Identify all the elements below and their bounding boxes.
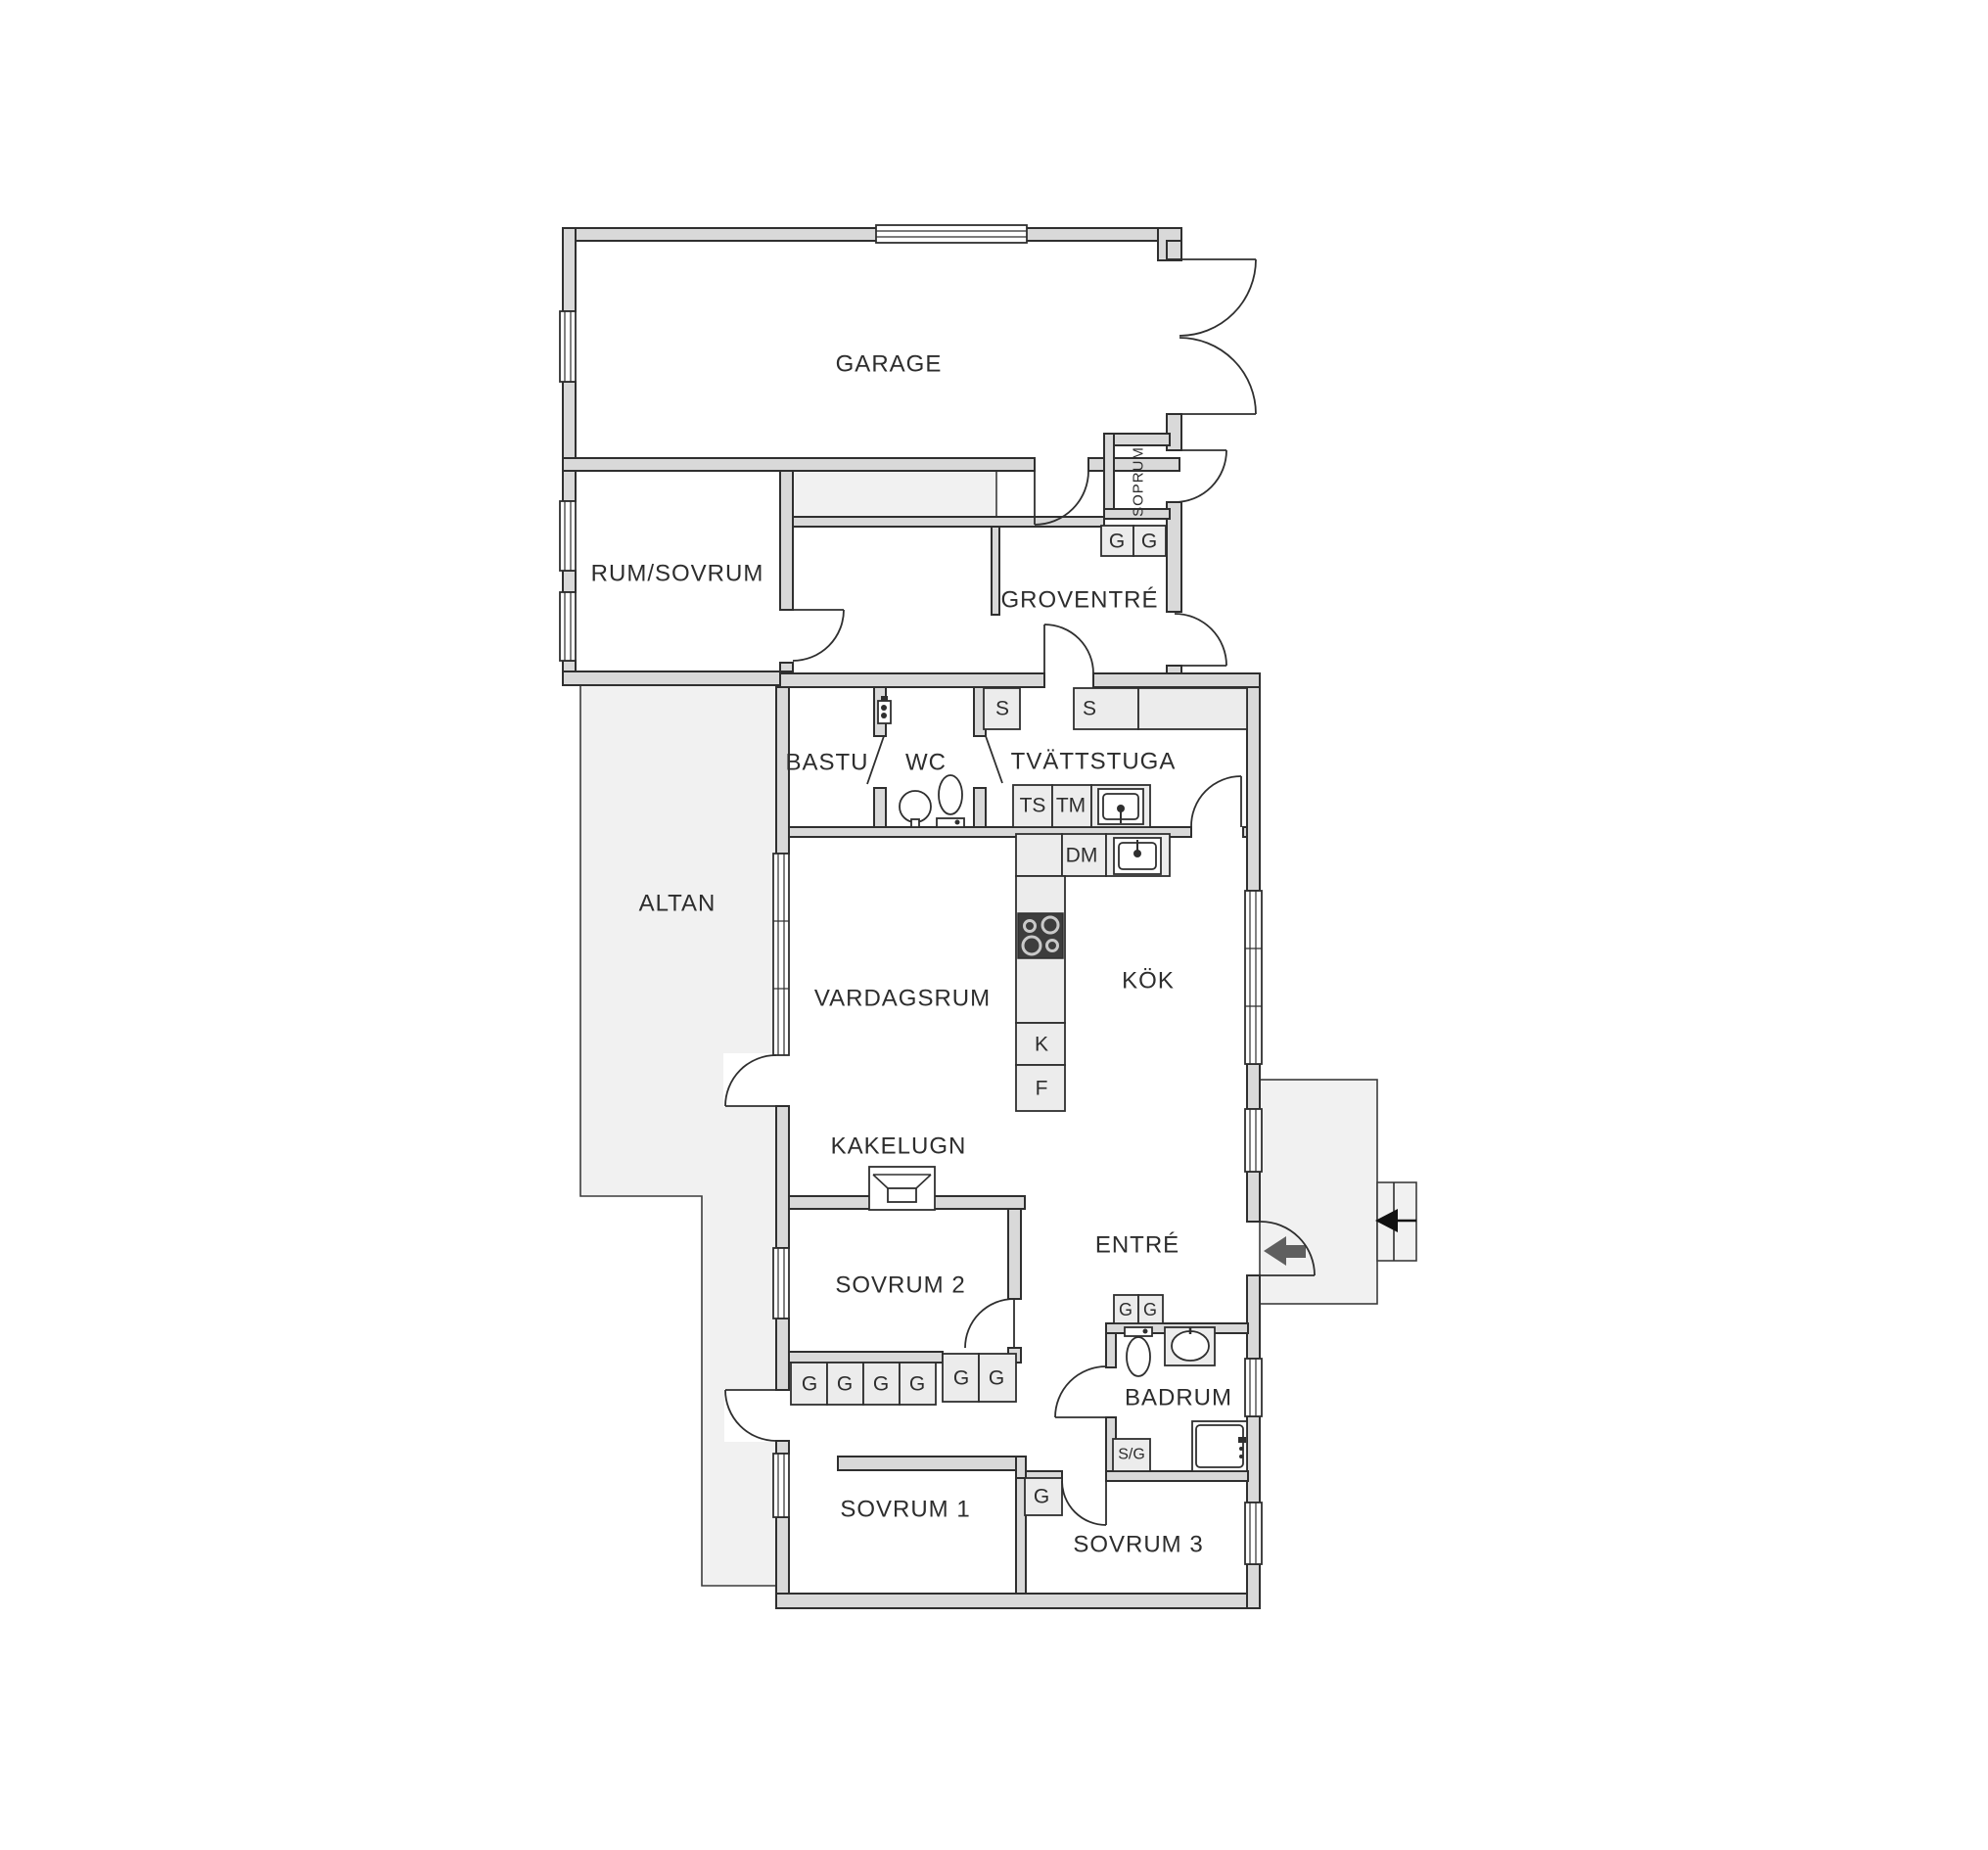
entry-porch — [1260, 1080, 1377, 1304]
bastu-door-leaf — [867, 736, 884, 784]
entre-wardrobe-1: G — [1114, 1295, 1138, 1323]
garage-left-window — [560, 311, 576, 382]
kitchen-counter-left — [1016, 834, 1062, 876]
rum-sovrum-window-2 — [560, 592, 576, 661]
hall-wardrobe-4: G — [900, 1363, 936, 1405]
room-label-sovrum1: SOVRUM 1 — [840, 1497, 970, 1523]
soprum-door — [1175, 450, 1226, 502]
room-label-sovrum3: SOVRUM 3 — [1073, 1532, 1203, 1558]
hall-wardrobe-5: G — [943, 1354, 979, 1402]
wardrobe-label: G — [1119, 1300, 1133, 1319]
kitchen-fridge-k: K — [1016, 1023, 1065, 1065]
hall-wardrobe-2: G — [827, 1363, 863, 1405]
deck-areas — [580, 468, 1416, 1586]
washer-label: TM — [1056, 795, 1086, 817]
hall-wardrobe-3: G — [863, 1363, 900, 1405]
kitchen-freezer-f: F — [1016, 1065, 1065, 1111]
floorplan-canvas: G G S S TS TM DM — [0, 0, 1988, 1850]
laundry-cabinet-s2: S — [1074, 688, 1138, 729]
rum-sovrum-door — [793, 610, 844, 661]
badrum-toilet-icon — [1125, 1327, 1152, 1376]
laundry-tm-unit: TM — [1052, 785, 1091, 827]
room-label-altan: ALTAN — [639, 891, 717, 917]
room-label-rum-sovrum: RUM/SOVRUM — [591, 561, 764, 587]
groventre-exterior-door — [1175, 614, 1226, 666]
room-label-kok: KÖK — [1122, 968, 1175, 994]
kok-window — [1245, 891, 1262, 1064]
room-label-wc: WC — [905, 750, 947, 776]
sauna-heater-icon — [878, 696, 891, 723]
wc-toilet-icon — [937, 775, 964, 827]
wardrobe-label: G — [1109, 531, 1125, 553]
sovrum2-door — [965, 1299, 1014, 1348]
room-label-sovrum2: SOVRUM 2 — [835, 1272, 965, 1299]
wc-door-leaf — [986, 736, 1002, 783]
laundry-sink-icon — [1098, 789, 1143, 824]
soprum-wardrobe-1: G — [1101, 526, 1133, 556]
dishwasher-label: DM — [1066, 845, 1098, 867]
altan-deck — [580, 685, 776, 1586]
cabinet-label: S/G — [1118, 1447, 1145, 1463]
wc-sink-icon — [900, 791, 931, 827]
entre-window — [1245, 1109, 1262, 1172]
sovrum1-window — [773, 1454, 789, 1517]
floorplan-svg: G G S S TS TM DM — [0, 0, 1988, 1850]
wardrobe-label: G — [802, 1373, 817, 1396]
fridge-label: K — [1035, 1034, 1048, 1056]
wardrobe-label: G — [909, 1373, 925, 1396]
wardrobe-label: G — [1034, 1486, 1049, 1508]
entre-wardrobe-2: G — [1138, 1295, 1163, 1323]
room-label-garage: GARAGE — [836, 351, 943, 378]
garage-double-door — [1179, 259, 1256, 414]
wardrobe-label: G — [873, 1373, 889, 1396]
garage-storage-strip — [793, 468, 996, 517]
laundry-ts-unit: TS — [1013, 785, 1052, 827]
room-label-entre: ENTRÉ — [1095, 1232, 1179, 1259]
room-label-vardagsrum: VARDAGSRUM — [814, 986, 991, 1012]
shower-icon — [1192, 1421, 1247, 1471]
badrum-sg-cabinet: S/G — [1113, 1439, 1150, 1471]
sovrum3-wardrobe: G — [1025, 1478, 1062, 1515]
groventre-tvattstuga-door — [1044, 624, 1093, 673]
wardrobe-label: G — [953, 1367, 969, 1390]
laundry-cabinet-plain — [1138, 688, 1247, 729]
wardrobe-label: G — [1143, 1300, 1157, 1319]
wardrobe-label: G — [989, 1367, 1004, 1390]
freezer-label: F — [1036, 1078, 1048, 1100]
room-label-bastu: BASTU — [785, 750, 868, 776]
rum-sovrum-window-1 — [560, 501, 576, 571]
badrum-door — [1055, 1366, 1106, 1417]
kakelugn-icon — [869, 1167, 935, 1210]
room-label-tvattstuga: TVÄTTSTUGA — [1011, 749, 1177, 775]
cabinet-label: S — [995, 698, 1009, 720]
kitchen-sink-icon — [1114, 838, 1161, 874]
room-label-groventre: GROVENTRÉ — [1000, 587, 1158, 614]
badrum-window — [1245, 1359, 1262, 1416]
garage-top-window — [876, 225, 1027, 243]
sovrum2-window — [773, 1248, 789, 1318]
cabinet-label: S — [1083, 698, 1096, 720]
label-kakelugn: KAKELUGN — [831, 1133, 967, 1160]
sovrum3-window — [1245, 1503, 1262, 1564]
stove-icon — [1018, 913, 1063, 958]
hall-wardrobe-1: G — [791, 1363, 827, 1405]
hall-wardrobe-6: G — [979, 1354, 1016, 1402]
wardrobe-label: G — [837, 1373, 853, 1396]
wardrobe-label: G — [1141, 531, 1157, 553]
sovrum3-door — [1062, 1481, 1106, 1525]
laundry-cabinet-s1: S — [984, 688, 1020, 729]
vardagsrum-window — [773, 854, 789, 1055]
dryer-label: TS — [1020, 795, 1046, 817]
room-label-soprum: SOPRUM — [1131, 446, 1147, 517]
tvattstuga-kok-door — [1191, 776, 1241, 827]
room-label-badrum: BADRUM — [1125, 1385, 1232, 1411]
badrum-sink-icon — [1165, 1327, 1215, 1365]
kitchen-dm-unit: DM — [1062, 834, 1106, 876]
soprum-wardrobe-2: G — [1133, 526, 1166, 556]
